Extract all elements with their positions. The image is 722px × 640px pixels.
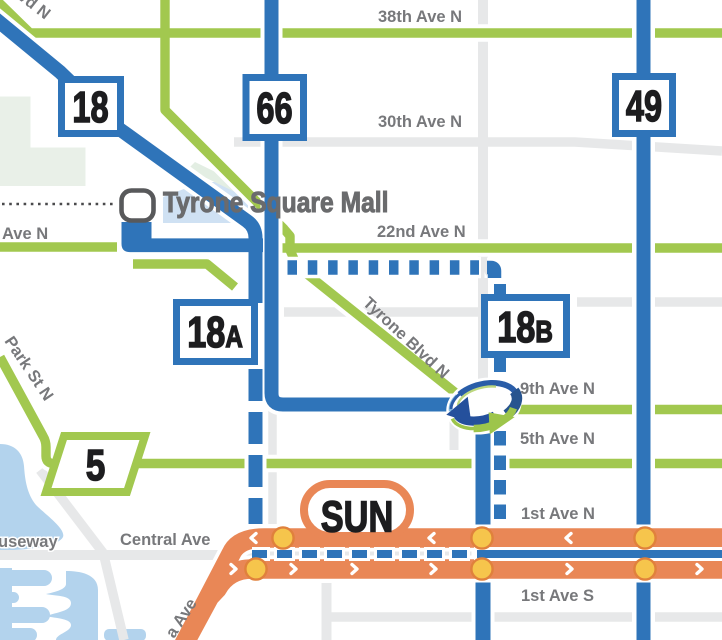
svg-text:18: 18 bbox=[72, 83, 108, 132]
svg-text:66: 66 bbox=[256, 84, 292, 133]
svg-text:Ave N: Ave N bbox=[2, 225, 48, 243]
svg-text:38th Ave N: 38th Ave N bbox=[378, 8, 462, 26]
svg-text:Central Ave: Central Ave bbox=[120, 531, 210, 549]
svg-text:49: 49 bbox=[626, 82, 662, 131]
svg-text:30th Ave N: 30th Ave N bbox=[378, 113, 462, 131]
svg-text:5th Ave N: 5th Ave N bbox=[520, 430, 595, 448]
svg-text:22nd Ave N: 22nd Ave N bbox=[377, 223, 466, 241]
svg-text:useway: useway bbox=[0, 533, 58, 551]
svg-text:9th Ave N: 9th Ave N bbox=[520, 380, 595, 398]
svg-text:Tyrone Square Mall: Tyrone Square Mall bbox=[163, 186, 389, 218]
svg-text:5: 5 bbox=[86, 441, 106, 490]
svg-text:1st Ave N: 1st Ave N bbox=[521, 505, 595, 523]
svg-text:SUN: SUN bbox=[321, 492, 393, 541]
svg-text:1st Ave S: 1st Ave S bbox=[521, 587, 594, 605]
